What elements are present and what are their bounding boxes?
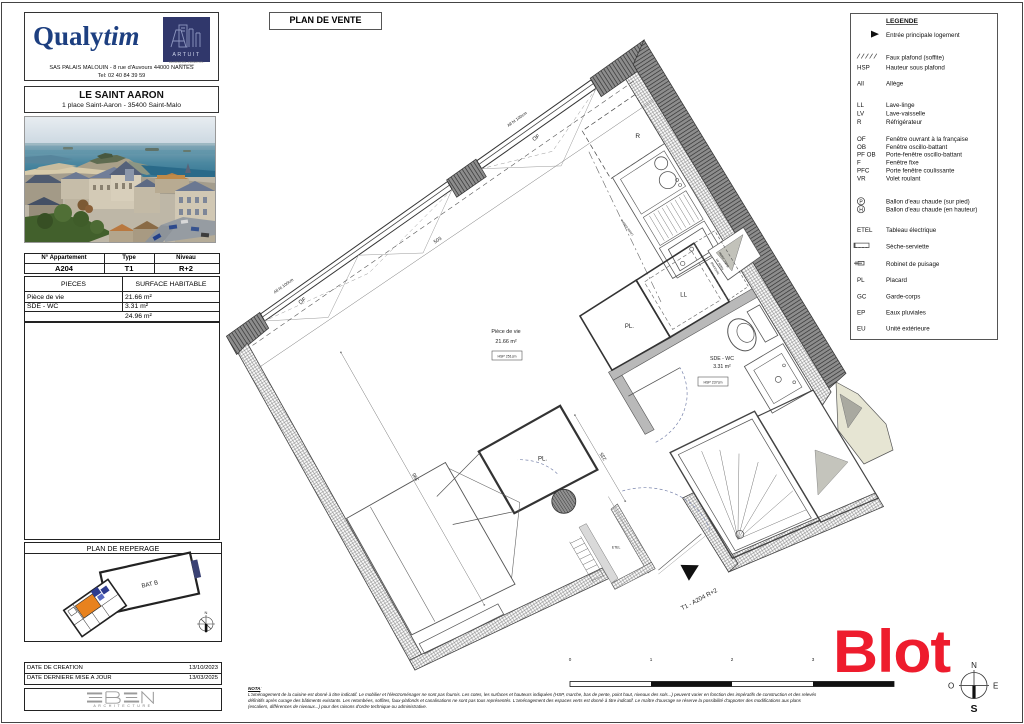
svg-text:1: 1 <box>650 657 653 662</box>
svg-text:2: 2 <box>731 657 734 662</box>
svg-text:E: E <box>993 682 998 691</box>
svg-text:0: 0 <box>569 657 572 662</box>
svg-text:S: S <box>970 703 977 715</box>
svg-text:3: 3 <box>812 657 815 662</box>
